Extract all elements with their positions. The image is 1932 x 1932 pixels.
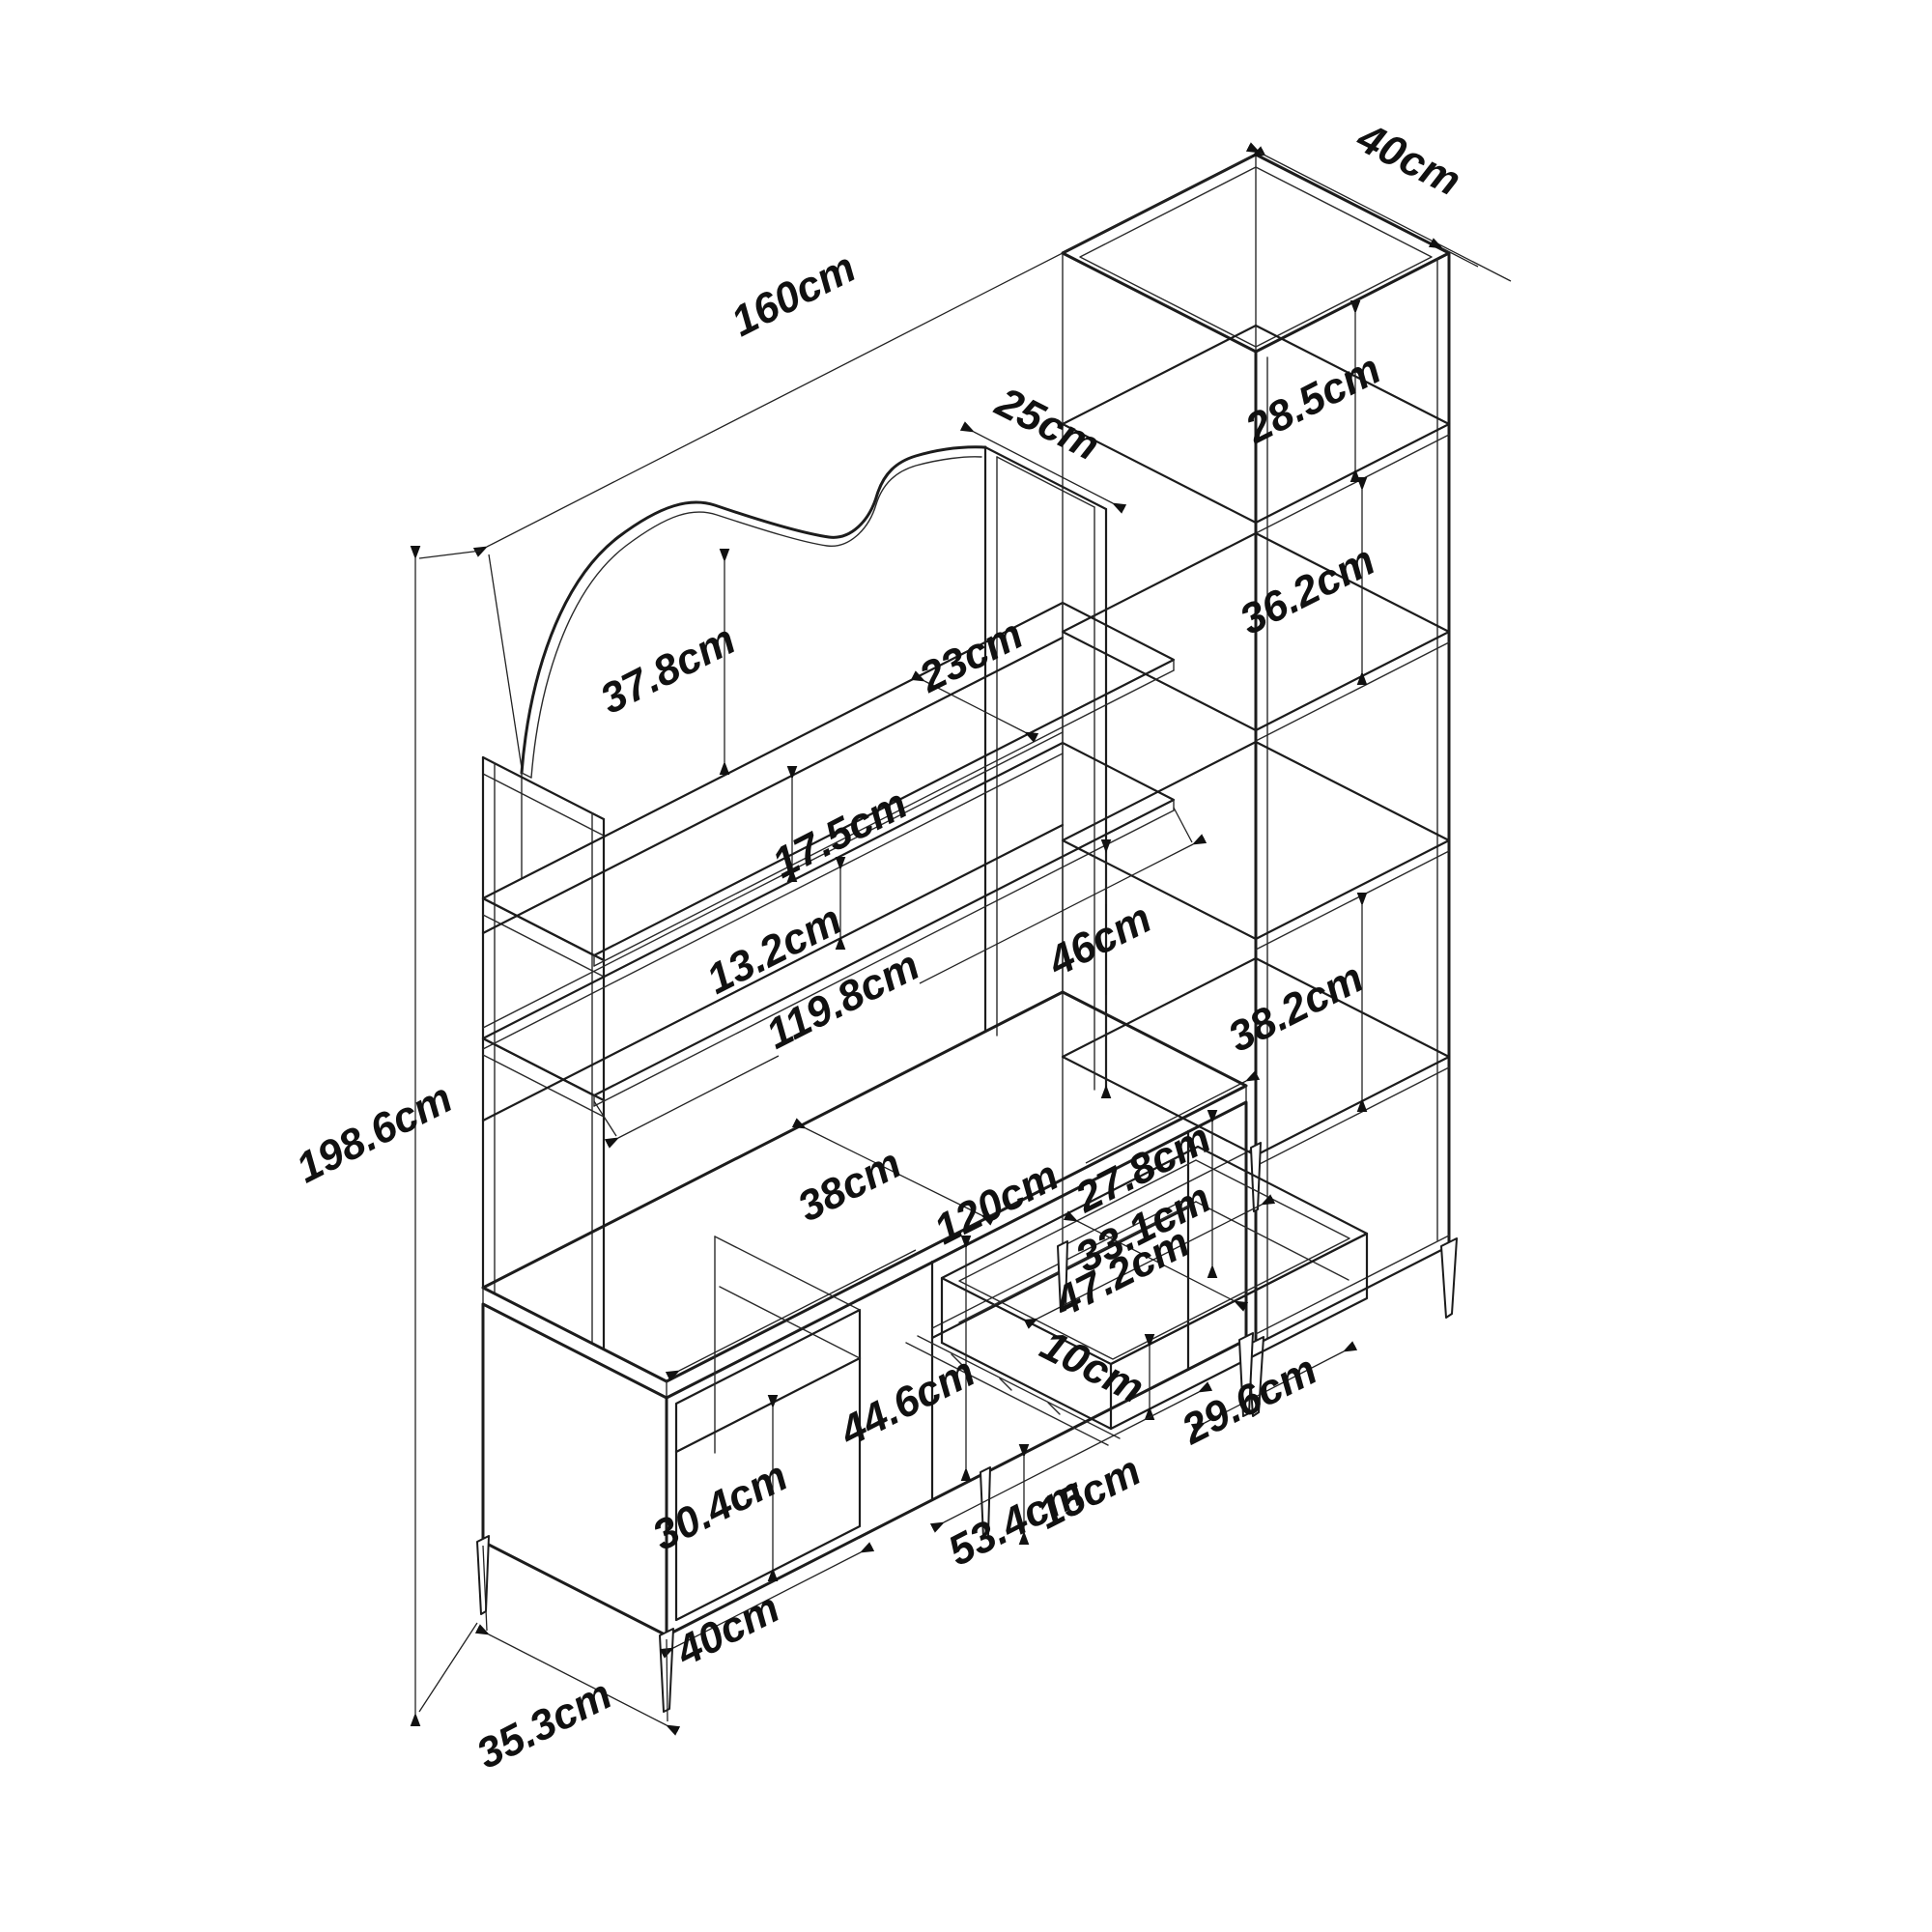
dim-column-top-opening: 28.5cm <box>1237 345 1388 453</box>
dim-hutch-depth: 25cm <box>987 378 1106 469</box>
furniture-dimension-diagram: 160cm 40cm 25cm 28.5cm 37.8cm 23cm 36.2c… <box>0 0 1932 1932</box>
dim-door-section-height: 44.6cm <box>832 1348 982 1456</box>
hutch-right-frame <box>985 447 1106 1094</box>
dim-top-shelf-depth: 23cm <box>911 611 1030 702</box>
dim-base-depth: 35.3cm <box>469 1670 619 1777</box>
dim-column-depth: 40cm <box>1349 113 1467 205</box>
dim-desk-depth: 38cm <box>790 1140 909 1232</box>
dim-column-lower-opening: 38.2cm <box>1221 953 1371 1061</box>
technical-drawing-page: 160cm 40cm 25cm 28.5cm 37.8cm 23cm 36.2c… <box>0 0 1932 1932</box>
dim-desk-width: 120cm <box>926 1151 1065 1254</box>
dim-hutch-clearance: 46cm <box>1039 895 1158 986</box>
dim-total-height: 198.6cm <box>289 1074 460 1193</box>
arched-back-panel <box>522 447 985 773</box>
cabinet-left-side <box>483 1304 667 1635</box>
dim-arch-height: 37.8cm <box>593 615 743 723</box>
left-cubby <box>676 1236 860 1620</box>
dim-total-width: 160cm <box>724 243 863 346</box>
dim-cubby-width: 40cm <box>668 1584 786 1676</box>
dim-leg-height: 15cm <box>1030 1447 1149 1539</box>
